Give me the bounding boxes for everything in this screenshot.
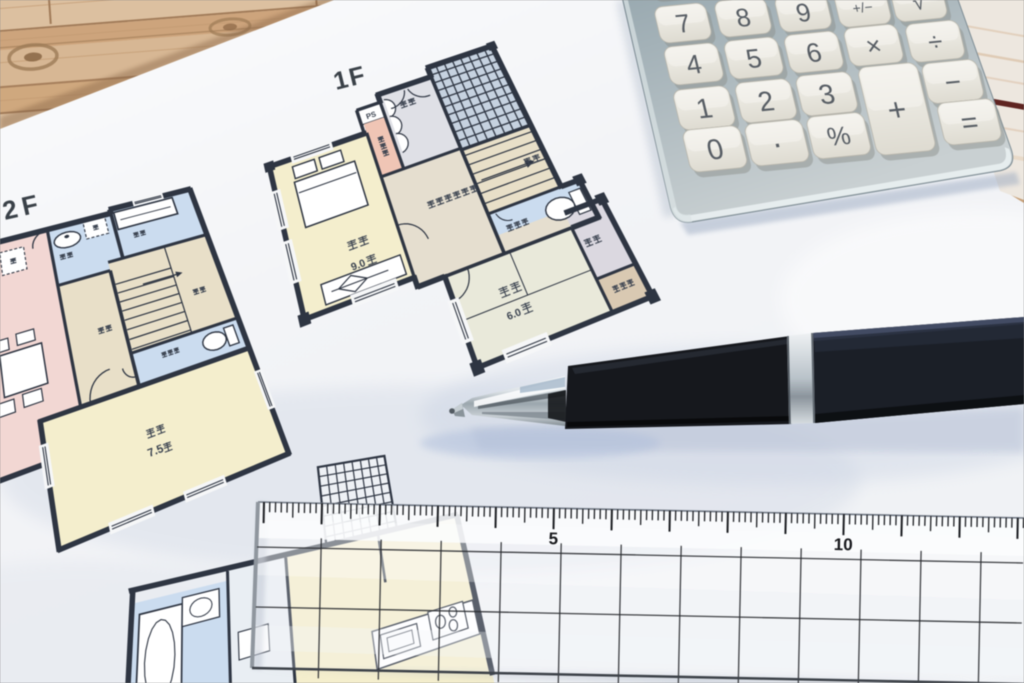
svg-text:+/−: +/−	[851, 0, 875, 16]
svg-text:10: 10	[834, 535, 853, 554]
svg-text:5: 5	[548, 529, 558, 548]
